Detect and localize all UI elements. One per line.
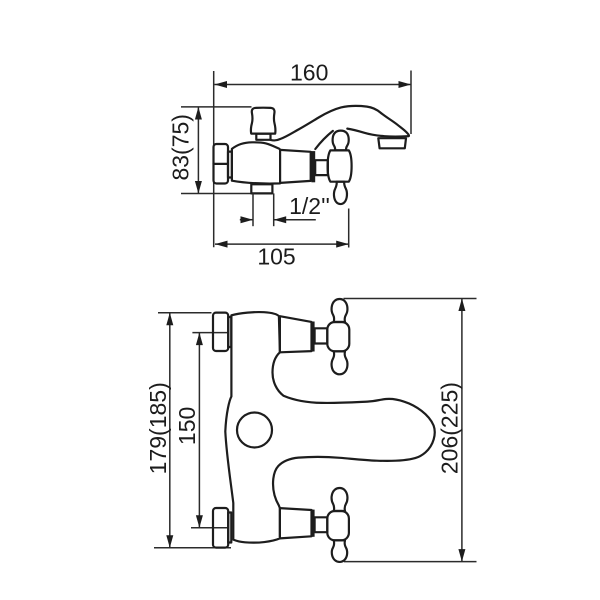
- svg-text:160: 160: [290, 60, 328, 86]
- svg-text:206(225): 206(225): [436, 382, 462, 474]
- svg-text:83(75): 83(75): [167, 114, 193, 180]
- svg-text:150: 150: [174, 407, 200, 445]
- svg-text:1/2'': 1/2'': [289, 193, 330, 219]
- svg-text:105: 105: [257, 243, 295, 269]
- svg-text:179(185): 179(185): [145, 382, 171, 474]
